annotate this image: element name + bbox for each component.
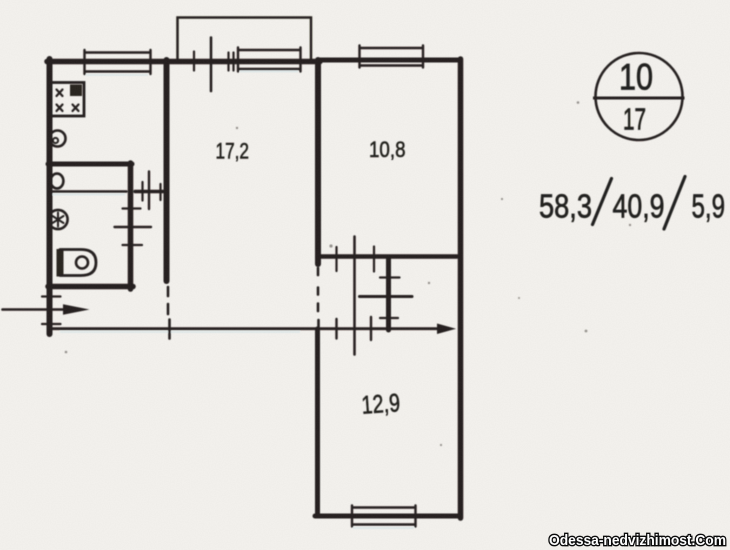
svg-text:Odessa-nedvizhimost.Com: Odessa-nedvizhimost.Com [549,532,726,549]
